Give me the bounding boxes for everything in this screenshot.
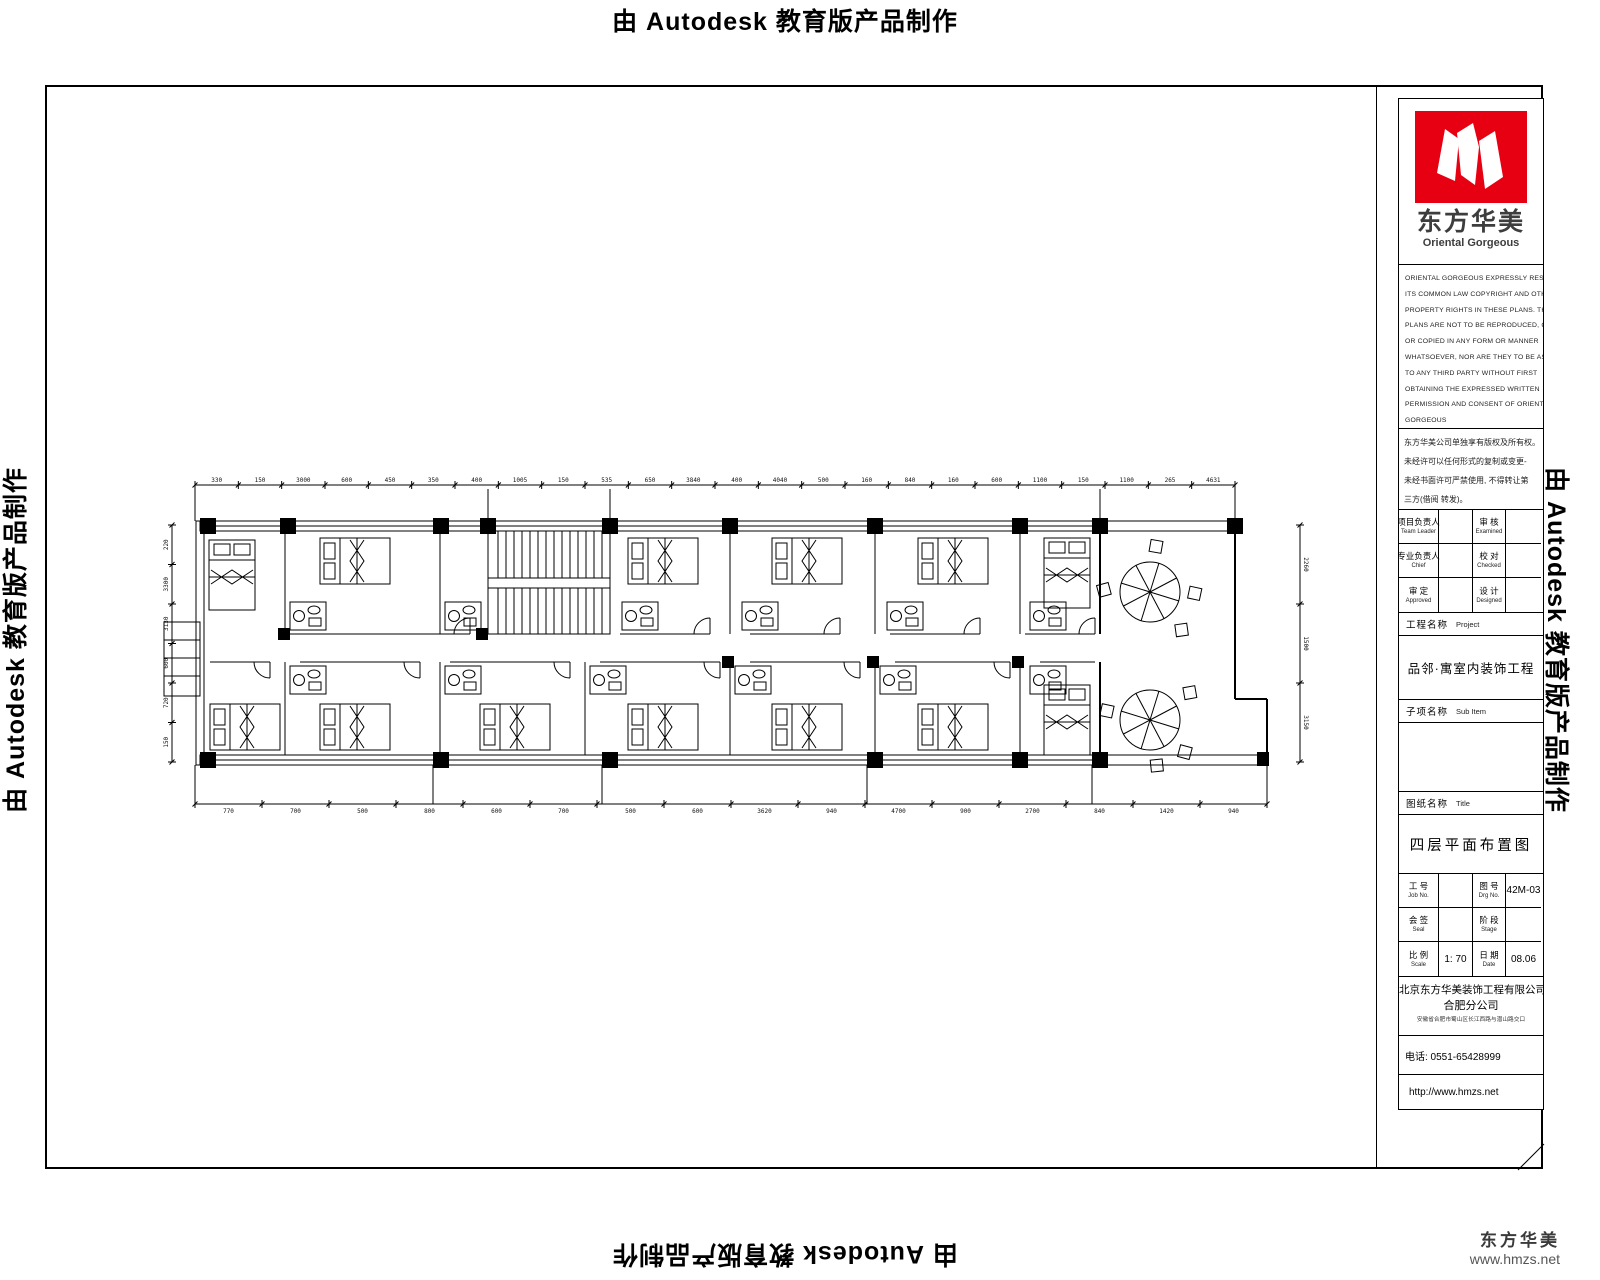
dim-label: 500 bbox=[625, 808, 636, 815]
bed-icon bbox=[1044, 685, 1090, 755]
copyright-line: PROPERTY RIGHTS IN THESE PLANS. THESE bbox=[1405, 303, 1539, 319]
bed-icon bbox=[1044, 538, 1090, 608]
dim-label: 2700 bbox=[1025, 808, 1040, 815]
round-table-icon bbox=[1100, 686, 1197, 772]
bathroom-fixtures-icon bbox=[290, 666, 326, 694]
logo-cn-text: 东方华美 bbox=[1399, 207, 1543, 237]
field-value bbox=[1439, 908, 1473, 942]
field-value bbox=[1439, 578, 1473, 612]
dim-label: 400 bbox=[731, 477, 742, 484]
dim-label: 720 bbox=[163, 697, 170, 708]
dim-label: 150 bbox=[1078, 477, 1089, 484]
dim-label: 2260 bbox=[1302, 557, 1309, 572]
field-label: 日 期Date bbox=[1473, 942, 1506, 976]
field-value bbox=[1506, 544, 1541, 578]
bed-icon bbox=[320, 704, 390, 750]
door-swing-icon bbox=[964, 618, 980, 634]
corridor-walls bbox=[210, 634, 1095, 662]
title-block-separator-line bbox=[1376, 85, 1377, 1169]
door-swing-icon bbox=[404, 662, 420, 678]
dimension-line-left: 22033003130600720150 bbox=[163, 523, 176, 765]
door-swings bbox=[254, 618, 1095, 678]
field-label: 专业负责人Chief bbox=[1399, 544, 1439, 578]
bathroom-fixtures-icon bbox=[590, 666, 626, 694]
dim-label: 600 bbox=[991, 477, 1002, 484]
field-label: 图 号Drg No. bbox=[1473, 874, 1506, 908]
round-table-icon bbox=[1097, 539, 1202, 636]
sheet-fold-mark bbox=[1516, 1142, 1546, 1172]
door-swing-icon bbox=[694, 618, 710, 634]
company-line2: 合肥分公司 bbox=[1399, 998, 1543, 1014]
bathroom-fixtures-icon bbox=[622, 602, 658, 630]
dim-label: 160 bbox=[861, 477, 872, 484]
dim-label: 500 bbox=[357, 808, 368, 815]
dim-label: 600 bbox=[491, 808, 502, 815]
notice-line: 三方(借阅 转发)。 bbox=[1404, 490, 1540, 509]
copyright-line: TO ANY THIRD PARTY WITHOUT FIRST bbox=[1405, 366, 1539, 382]
dim-label: 3000 bbox=[296, 477, 311, 484]
bathroom-fixtures-icon bbox=[445, 666, 481, 694]
dim-label: 700 bbox=[290, 808, 301, 815]
notice-line: 未经书面许可严禁使用, 不得转让第 bbox=[1404, 471, 1540, 490]
website-value: http://www.hmzs.net bbox=[1409, 1087, 1498, 1098]
personnel-table: 项目负责人Team Leader审 核Examined专业负责人Chief校 对… bbox=[1399, 510, 1543, 613]
copyright-line: PERMISSION AND CONSENT OF ORIENTAL bbox=[1405, 397, 1539, 413]
bed-icon bbox=[772, 704, 842, 750]
dimension-line-top: 3301503000600450350400100515053565038404… bbox=[193, 477, 1238, 521]
copyright-line: ORIENTAL GORGEOUS EXPRESSLY RESERVES bbox=[1405, 271, 1539, 287]
logo-en-text: Oriental Gorgeous bbox=[1399, 237, 1543, 249]
sub-item-label-cn: 子项名称 bbox=[1406, 704, 1448, 718]
dim-label: 450 bbox=[385, 477, 396, 484]
company-line1: 北京东方华美装饰工程有限公司 bbox=[1399, 982, 1543, 998]
floor-plan-drawing: 3301503000600450350400100515053565038404… bbox=[150, 452, 1325, 837]
bed-icon bbox=[772, 538, 842, 584]
footer-brand-name: 东方华美 bbox=[1470, 1226, 1560, 1251]
bed-icon bbox=[918, 538, 988, 584]
logo-mark-icon bbox=[1415, 111, 1527, 203]
dim-label: 650 bbox=[645, 477, 656, 484]
title-block: 东方华美 Oriental Gorgeous ORIENTAL GORGEOUS… bbox=[1398, 98, 1544, 1110]
field-label: 审 核Examined bbox=[1473, 510, 1506, 544]
phone-cell: 电话: 0551-65428999 bbox=[1399, 1036, 1543, 1075]
footer-brand: 东方华美 www.hmzs.net bbox=[1470, 1226, 1560, 1267]
dim-label: 800 bbox=[424, 808, 435, 815]
bathroom-fixtures-icon bbox=[1030, 602, 1066, 630]
dim-label: 3840 bbox=[686, 477, 701, 484]
bathroom-fixtures-icon bbox=[1030, 666, 1066, 694]
watermark-right: 由 Autodesk 教育版产品制作 bbox=[1540, 467, 1576, 813]
copyright-line: GORGEOUS bbox=[1405, 413, 1539, 429]
dim-label: 1100 bbox=[1119, 477, 1134, 484]
sheet-title-cell: 四层平面布置图 bbox=[1399, 815, 1543, 874]
company-name-cell: 北京东方华美装饰工程有限公司 合肥分公司 安徽省合肥市蜀山区长江西路与潜山路交口 bbox=[1399, 977, 1543, 1036]
dim-label: 150 bbox=[163, 736, 170, 747]
bed-icon bbox=[480, 704, 550, 750]
dim-label: 900 bbox=[960, 808, 971, 815]
dimension-line-bottom: 7707005008006007005006003620940470090027… bbox=[193, 765, 1270, 815]
bathroom-fixtures-icon bbox=[735, 666, 771, 694]
dim-label: 940 bbox=[1228, 808, 1239, 815]
dim-label: 160 bbox=[948, 477, 959, 484]
watermark-left: 由 Autodesk 教育版产品制作 bbox=[0, 467, 32, 813]
copyright-line: WHATSOEVER, NOR ARE THEY TO BE ASSIGNED bbox=[1405, 350, 1539, 366]
beds bbox=[209, 538, 1090, 755]
notice-line: 东方华美公司单独享有版权及所有权。 bbox=[1404, 433, 1540, 452]
dim-label: 535 bbox=[601, 477, 612, 484]
field-value: 42M-03 bbox=[1506, 874, 1541, 908]
project-name-value: 品邻·寓室内装饰工程 bbox=[1408, 658, 1535, 677]
bed-icon bbox=[209, 540, 255, 610]
dim-label: 150 bbox=[255, 477, 266, 484]
sub-item-cell bbox=[1399, 723, 1543, 792]
dim-label: 840 bbox=[1094, 808, 1105, 815]
dim-label: 330 bbox=[211, 477, 222, 484]
sheet-title-value: 四层平面布置图 bbox=[1410, 834, 1533, 855]
bed-icon bbox=[918, 704, 988, 750]
dim-label: 770 bbox=[223, 808, 234, 815]
bathroom-fixtures-icon bbox=[445, 602, 481, 630]
door-swing-icon bbox=[554, 662, 570, 678]
door-swing-icon bbox=[254, 662, 270, 678]
door-swing-icon bbox=[704, 662, 720, 678]
field-value: 1: 70 bbox=[1439, 942, 1473, 976]
bathroom-fixtures-icon bbox=[290, 602, 326, 630]
dim-label: 4631 bbox=[1206, 477, 1221, 484]
field-label: 会 签Seal bbox=[1399, 908, 1439, 942]
bathrooms bbox=[290, 602, 1066, 694]
bed-icon bbox=[628, 538, 698, 584]
field-value bbox=[1506, 578, 1541, 612]
staircase bbox=[488, 531, 610, 634]
dim-label: 1500 bbox=[1302, 636, 1309, 651]
dim-label: 940 bbox=[826, 808, 837, 815]
door-swing-icon bbox=[994, 662, 1010, 678]
dim-label: 220 bbox=[163, 539, 170, 550]
door-swing-icon bbox=[1079, 618, 1095, 634]
building-walls bbox=[164, 521, 1267, 765]
field-label: 比 例Scale bbox=[1399, 942, 1439, 976]
field-label: 校 对Checked bbox=[1473, 544, 1506, 578]
bathroom-fixtures-icon bbox=[887, 602, 923, 630]
dim-label: 3300 bbox=[163, 577, 170, 592]
dimension-line-right: 226015003150 bbox=[1296, 523, 1309, 765]
field-value bbox=[1506, 908, 1541, 942]
notice-line: 未经许可以任何形式的复制或变更- bbox=[1404, 452, 1540, 471]
field-value bbox=[1439, 874, 1473, 908]
bed-icon bbox=[320, 538, 390, 584]
bed-icon bbox=[628, 704, 698, 750]
copyright-notice: ORIENTAL GORGEOUS EXPRESSLY RESERVESITS … bbox=[1399, 265, 1543, 429]
dim-label: 840 bbox=[905, 477, 916, 484]
field-value bbox=[1439, 510, 1473, 544]
dim-label: 700 bbox=[558, 808, 569, 815]
dim-label: 150 bbox=[558, 477, 569, 484]
field-value bbox=[1439, 544, 1473, 578]
sheet-title-label-cn: 图纸名称 bbox=[1406, 796, 1448, 810]
dim-label: 600 bbox=[341, 477, 352, 484]
dim-label: 600 bbox=[692, 808, 703, 815]
door-swing-icon bbox=[844, 662, 860, 678]
sheet-title-header: 图纸名称 Title bbox=[1399, 792, 1543, 815]
dim-label: 3620 bbox=[757, 808, 772, 815]
sub-item-header: 子项名称 Sub Item bbox=[1399, 700, 1543, 723]
project-name-header: 工程名称 Project bbox=[1399, 613, 1543, 636]
dim-label: 265 bbox=[1165, 477, 1176, 484]
phone-value: 电话: 0551-65428999 bbox=[1405, 1048, 1501, 1063]
dim-label: 1005 bbox=[513, 477, 528, 484]
bathroom-fixtures-icon bbox=[742, 602, 778, 630]
bed-icon bbox=[210, 704, 280, 750]
dim-label: 4700 bbox=[891, 808, 906, 815]
project-name-cell: 品邻·寓室内装饰工程 bbox=[1399, 636, 1543, 700]
copyright-line: OBTAINING THE EXPRESSED WRITTEN bbox=[1405, 382, 1539, 398]
field-label: 项目负责人Team Leader bbox=[1399, 510, 1439, 544]
copyright-line: PLANS ARE NOT TO BE REPRODUCED, CHANGED bbox=[1405, 318, 1539, 334]
dim-label: 1420 bbox=[1159, 808, 1174, 815]
company-logo: 东方华美 Oriental Gorgeous bbox=[1399, 99, 1543, 265]
chinese-notice: 东方华美公司单独享有版权及所有权。未经许可以任何形式的复制或变更-未经书面许可严… bbox=[1399, 429, 1543, 510]
sub-item-label-en: Sub Item bbox=[1456, 707, 1486, 716]
field-value bbox=[1506, 510, 1541, 544]
sheet-title-label-en: Title bbox=[1456, 799, 1470, 808]
drawing-info-table: 工 号Job No.图 号Drg No.42M-03会 签Seal阶 段Stag… bbox=[1399, 874, 1543, 977]
terrace-tables bbox=[1097, 539, 1202, 772]
field-label: 设 计Designed bbox=[1473, 578, 1506, 612]
dim-label: 1100 bbox=[1033, 477, 1048, 484]
project-label-cn: 工程名称 bbox=[1406, 617, 1448, 631]
dim-label: 3150 bbox=[1302, 715, 1309, 730]
room-partitions bbox=[285, 531, 1020, 755]
field-label: 审 定Approved bbox=[1399, 578, 1439, 612]
website-cell: http://www.hmzs.net bbox=[1399, 1075, 1543, 1109]
copyright-line: OR COPIED IN ANY FORM OR MANNER bbox=[1405, 334, 1539, 350]
copyright-line: ITS COMMON LAW COPYRIGHT AND OTHER bbox=[1405, 287, 1539, 303]
door-swing-icon bbox=[824, 618, 840, 634]
company-address: 安徽省合肥市蜀山区长江西路与潜山路交口 bbox=[1403, 1014, 1540, 1023]
footer-brand-url: www.hmzs.net bbox=[1470, 1251, 1560, 1267]
dim-label: 350 bbox=[428, 477, 439, 484]
watermark-top: 由 Autodesk 教育版产品制作 bbox=[612, 2, 958, 38]
dim-label: 400 bbox=[471, 477, 482, 484]
dim-label: 500 bbox=[818, 477, 829, 484]
field-value: 08.06 bbox=[1506, 942, 1541, 976]
project-label-en: Project bbox=[1456, 620, 1479, 629]
field-label: 阶 段Stage bbox=[1473, 908, 1506, 942]
watermark-bottom: 由 Autodesk 教育版产品制作 bbox=[612, 1238, 958, 1274]
field-label: 工 号Job No. bbox=[1399, 874, 1439, 908]
bathroom-fixtures-icon bbox=[880, 666, 916, 694]
dim-label: 4040 bbox=[773, 477, 788, 484]
